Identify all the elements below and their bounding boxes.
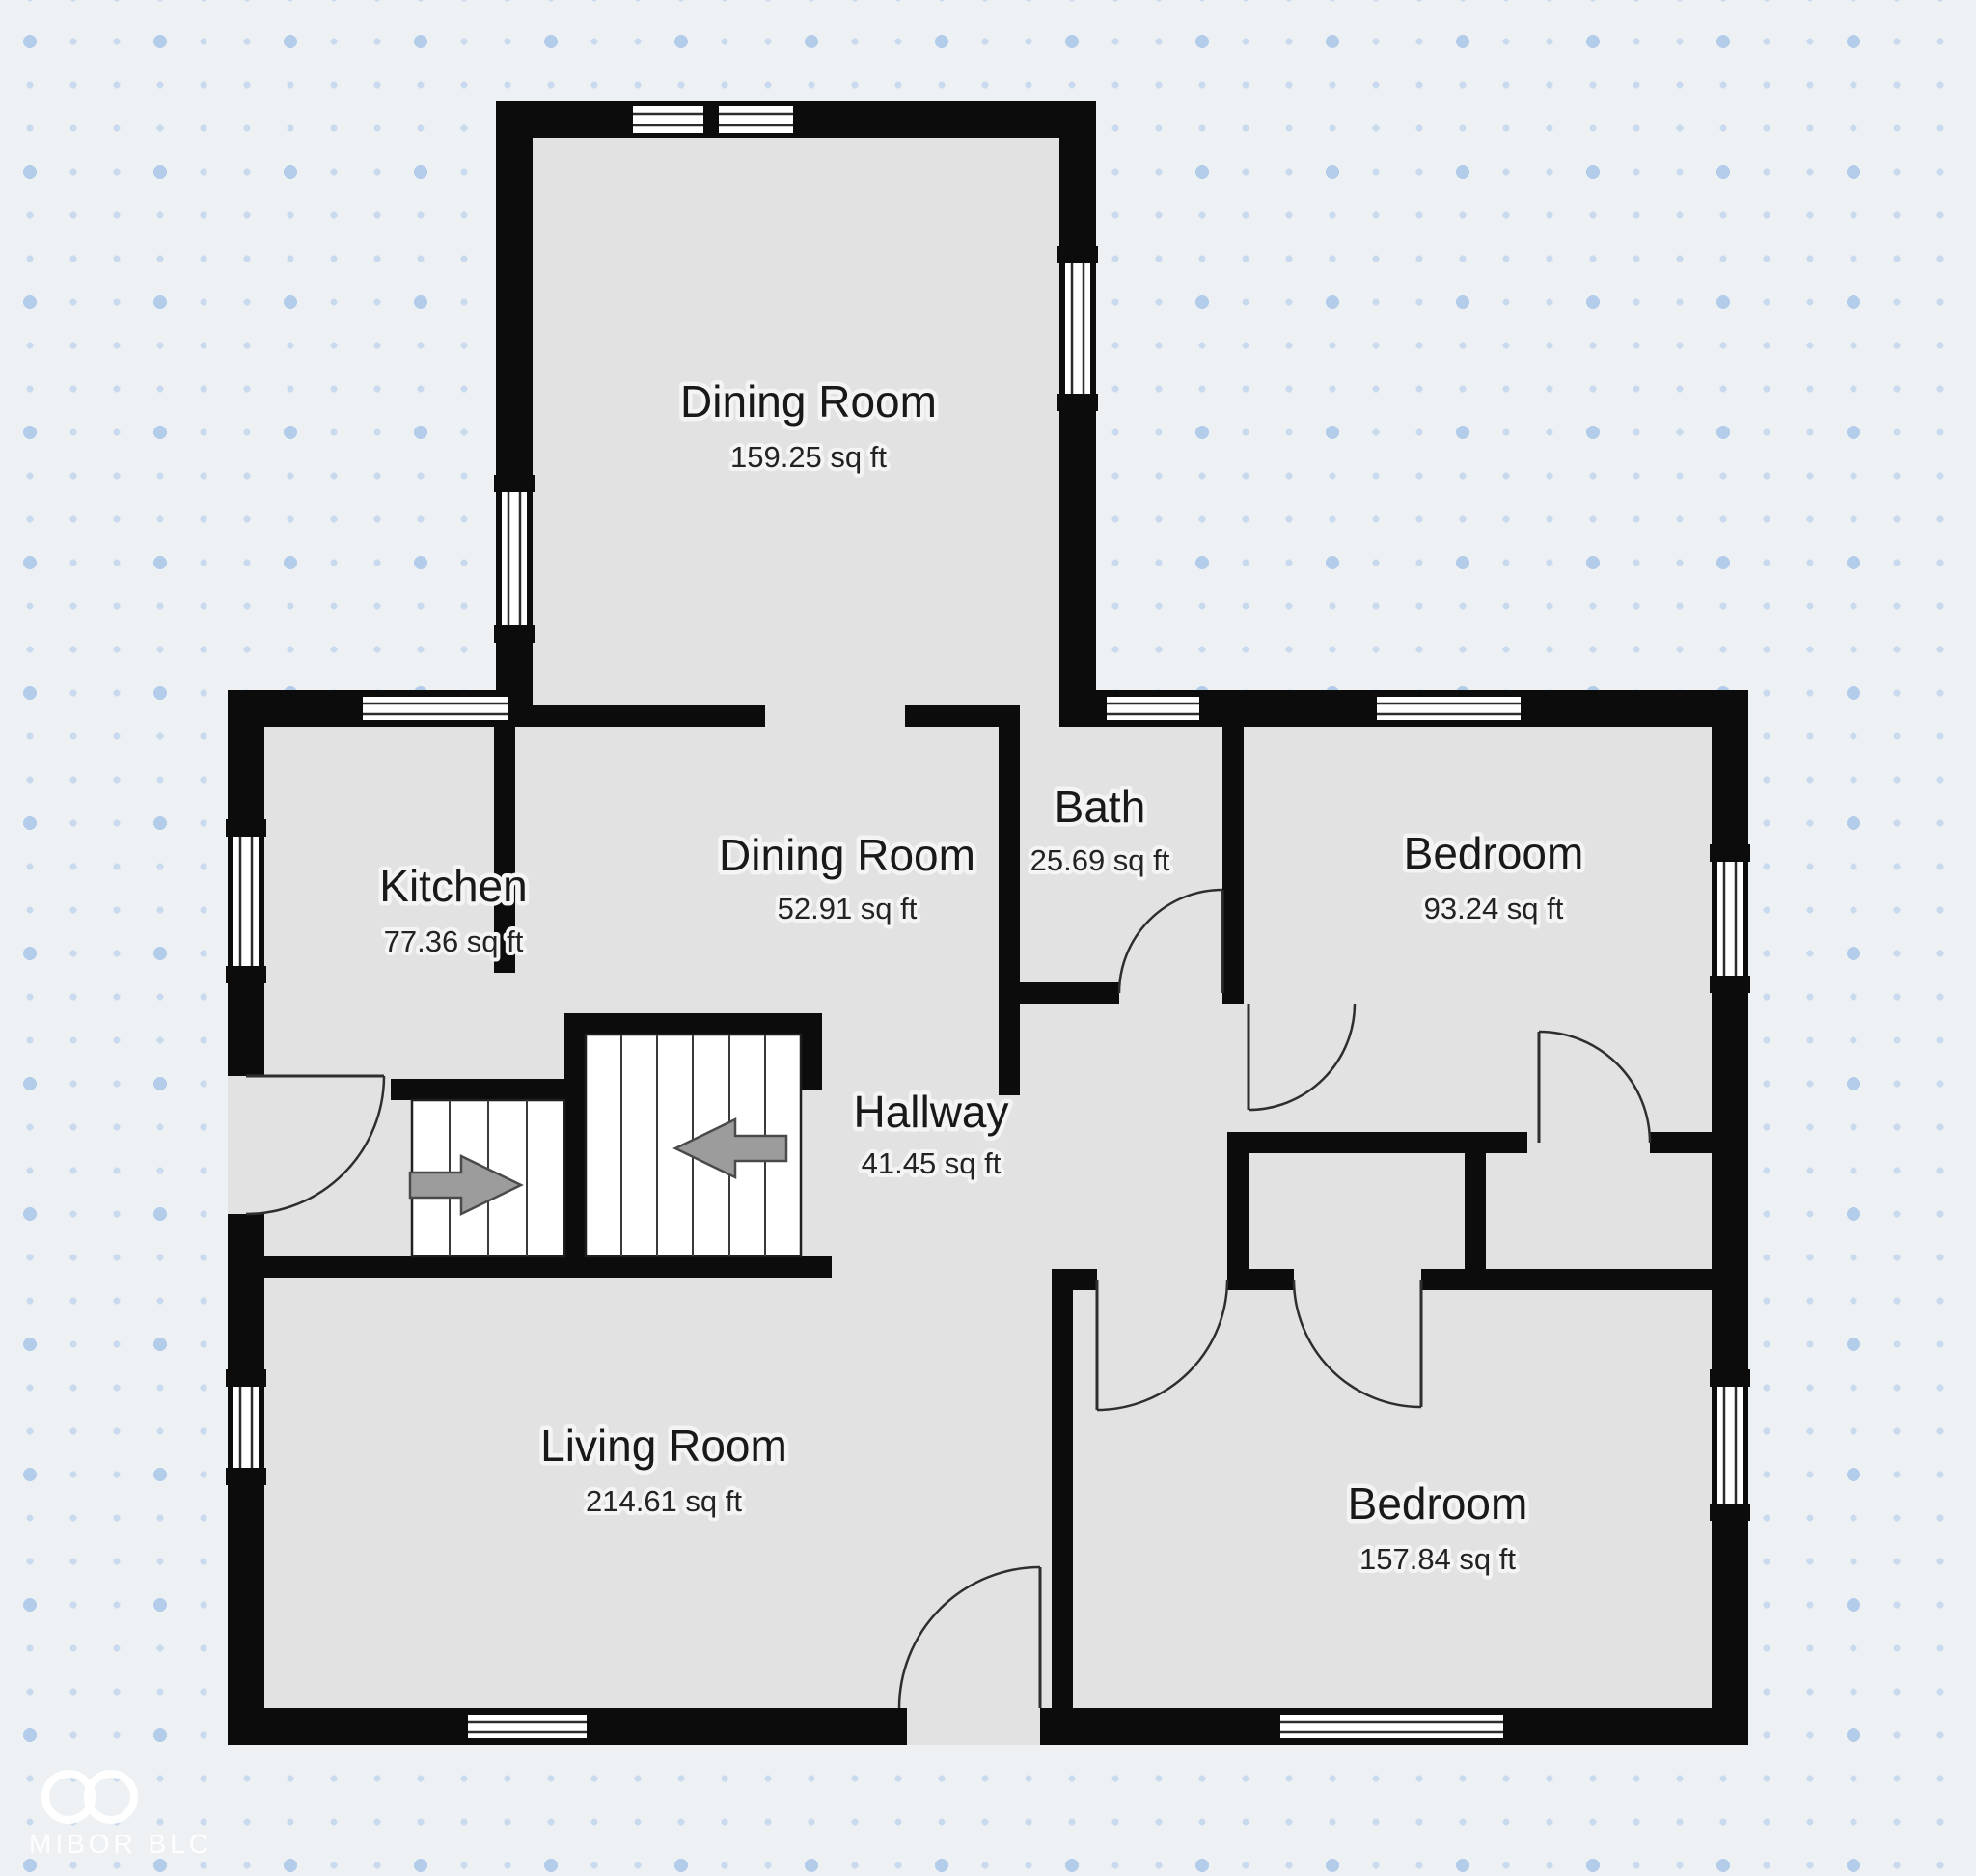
- window-symbol: [1363, 692, 1534, 725]
- wall-hall-bedroom-c: [1421, 1269, 1712, 1290]
- room-label-kitchen: Kitchen 77.36 sq ft: [379, 861, 527, 958]
- room-name: Living Room: [540, 1421, 787, 1471]
- room-name: Bedroom: [1348, 1478, 1528, 1529]
- watermark-brand: MIBOR BLC: [29, 1829, 212, 1859]
- room-name: Dining Room: [719, 830, 975, 880]
- room-label-hallway: Hallway 41.45 sq ft: [853, 1087, 1008, 1180]
- wall-living-bedroom-divider: [1052, 1290, 1073, 1708]
- wall-bedroom-upper-bottom-stub: [1650, 1132, 1712, 1153]
- window-symbol: [349, 692, 521, 725]
- room-area: 52.91 sq ft: [778, 892, 918, 925]
- room-area: 25.69 sq ft: [1030, 843, 1170, 877]
- staircase-lower: [410, 1100, 564, 1256]
- side-door-opening: [228, 1076, 264, 1214]
- front-door-opening: [907, 1708, 1040, 1745]
- room-area: 41.45 sq ft: [862, 1146, 1002, 1180]
- room-name: Dining Room: [680, 376, 937, 427]
- wall-hall-bedroom-b: [1227, 1269, 1294, 1290]
- wall-bath-bedroom-divider: [1222, 727, 1244, 1004]
- wall-right: [1712, 690, 1748, 1708]
- wall-bedroom-upper-bottom: [1227, 1132, 1527, 1153]
- room-label-bedroom-upper: Bedroom 93.24 sq ft: [1404, 828, 1584, 925]
- room-area: 157.84 sq ft: [1359, 1542, 1516, 1576]
- floor-plan: Dining Room 159.25 sq ft Kitchen 77.36 s…: [0, 0, 1976, 1876]
- window-symbol: [617, 103, 809, 136]
- wall-dining-right: [1059, 138, 1096, 727]
- room-name: Kitchen: [379, 861, 527, 911]
- room-area: 93.24 sq ft: [1424, 892, 1564, 925]
- room-area: 159.25 sq ft: [730, 440, 887, 474]
- wall-stairs-right-stub: [801, 1035, 822, 1090]
- wall-bath-bottom: [1020, 982, 1119, 1004]
- room-area: 214.61 sq ft: [586, 1484, 742, 1518]
- wall-living-top: [228, 1256, 832, 1278]
- wall-dining-bottom-left: [515, 705, 765, 727]
- room-name: Bedroom: [1404, 828, 1584, 878]
- window-symbol: [1267, 1710, 1517, 1743]
- window-symbol: [454, 1710, 600, 1743]
- watermark: MIBOR BLC: [29, 1774, 212, 1859]
- wall-stairs-lower-top: [391, 1079, 564, 1100]
- room-name: Bath: [1055, 782, 1146, 832]
- wall-hall-bedroom-a: [1052, 1269, 1097, 1290]
- staircase-upper: [586, 1035, 801, 1256]
- room-label-bedroom-lower: Bedroom 157.84 sq ft: [1348, 1478, 1528, 1576]
- wall-stairs-divider: [564, 1035, 586, 1256]
- room-area: 77.36 sq ft: [384, 924, 524, 958]
- room-fill-dining-top: [533, 138, 1059, 727]
- window-symbol: [1093, 692, 1213, 725]
- wall-stairs-top: [564, 1013, 822, 1035]
- room-name: Hallway: [853, 1087, 1008, 1137]
- infinity-logo-icon: [45, 1774, 134, 1820]
- wall-dining-hall-divider: [999, 727, 1020, 1095]
- wall-dining-bottom-right: [905, 705, 1020, 727]
